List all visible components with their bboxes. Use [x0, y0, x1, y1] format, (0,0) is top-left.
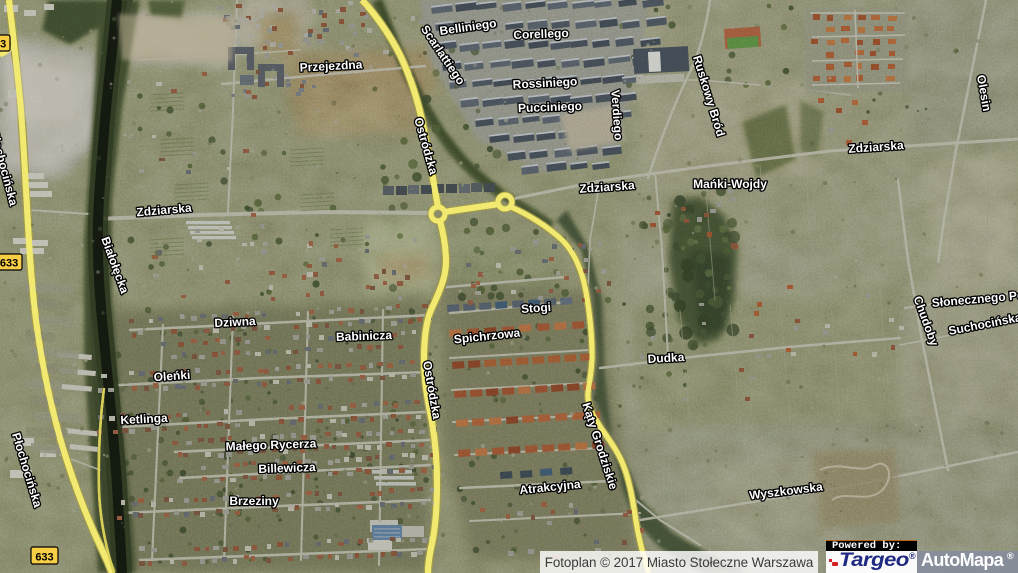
svg-text:Brzeziny: Brzeziny: [229, 494, 279, 508]
svg-text:Corellego: Corellego: [513, 26, 569, 42]
svg-text:Billewicza: Billewicza: [258, 460, 316, 476]
svg-text:633: 633: [0, 258, 18, 270]
svg-text:Stogi: Stogi: [521, 300, 552, 316]
svg-text:633: 633: [0, 39, 6, 51]
svg-text:633: 633: [35, 552, 53, 564]
svg-text:Mańki-Wojdy: Mańki-Wojdy: [693, 177, 767, 191]
svg-text:Pucciniego: Pucciniego: [518, 99, 582, 115]
svg-text:Ketlinga: Ketlinga: [120, 411, 168, 427]
svg-text:Dziwna: Dziwna: [214, 314, 256, 330]
svg-text:Oleńki: Oleńki: [153, 368, 191, 385]
svg-text:Dudka: Dudka: [647, 350, 685, 366]
svg-text:Babinicza: Babinicza: [336, 328, 393, 344]
